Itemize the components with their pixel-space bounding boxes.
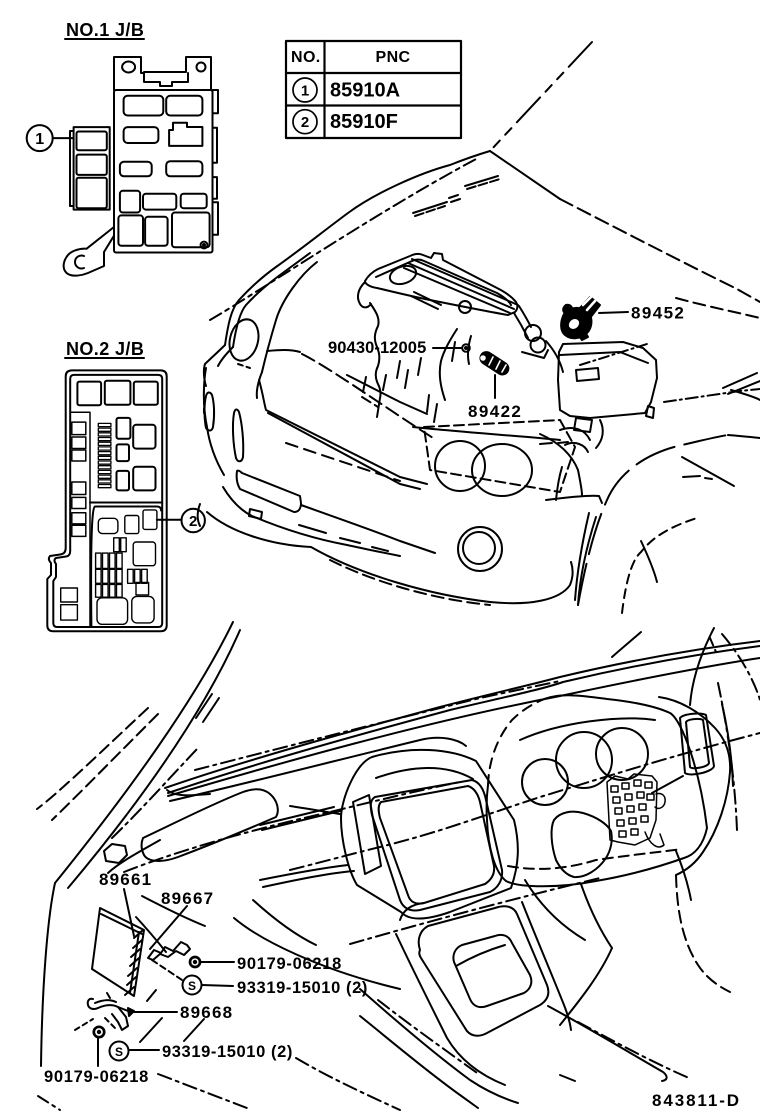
svg-text:90179-06218: 90179-06218 — [44, 1068, 149, 1086]
svg-text:NO.2 J/B: NO.2 J/B — [66, 339, 144, 359]
svg-text:2: 2 — [189, 513, 197, 530]
svg-text:S: S — [188, 979, 196, 993]
svg-text:93319-15010 (2): 93319-15010 (2) — [237, 979, 368, 997]
svg-text:85910F: 85910F — [330, 111, 398, 133]
svg-text:NO.1 J/B: NO.1 J/B — [66, 20, 144, 40]
svg-text:89661: 89661 — [99, 870, 152, 889]
svg-text:S: S — [115, 1045, 123, 1059]
svg-text:89452: 89452 — [631, 304, 685, 323]
svg-text:89667: 89667 — [161, 889, 214, 908]
svg-text:2: 2 — [301, 114, 309, 131]
svg-text:89668: 89668 — [180, 1003, 233, 1022]
svg-text:PNC: PNC — [376, 49, 411, 66]
svg-text:1: 1 — [35, 131, 44, 148]
svg-text:90430-12005: 90430-12005 — [328, 339, 426, 357]
svg-text:843811-D: 843811-D — [652, 1091, 741, 1110]
svg-text:NO.: NO. — [291, 49, 321, 66]
svg-text:1: 1 — [301, 83, 309, 100]
svg-text:89422: 89422 — [468, 402, 522, 421]
svg-text:85910A: 85910A — [330, 80, 400, 102]
svg-text:90179-06218: 90179-06218 — [237, 955, 342, 973]
svg-text:93319-15010 (2): 93319-15010 (2) — [162, 1043, 293, 1061]
